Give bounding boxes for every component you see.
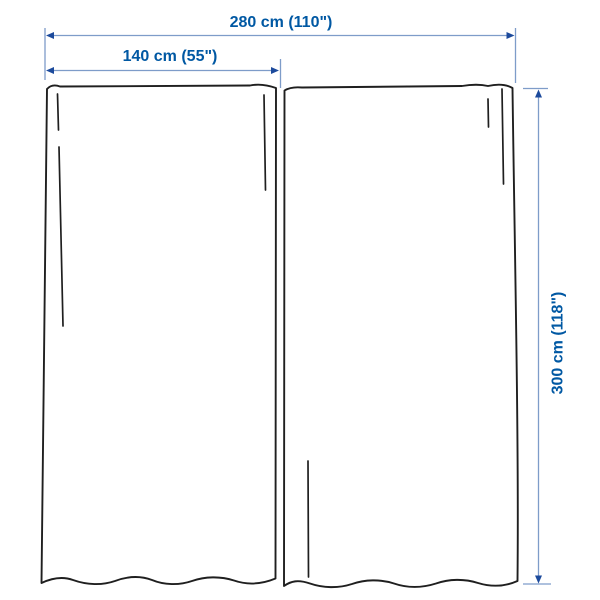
- dimension-width-panel: 140 cm (55"): [46, 48, 281, 88]
- width-total-label: 280 cm (110"): [230, 14, 333, 31]
- dimension-height: 300 cm (118"): [523, 89, 567, 585]
- curtains-diagram-svg: 280 cm (110") 140 cm (55") 300 cm (118"): [0, 0, 600, 600]
- product-dimension-diagram: 280 cm (110") 140 cm (55") 300 cm (118"): [0, 0, 600, 600]
- curtain-left-fold-line: [58, 94, 59, 130]
- curtain-panel-left: [42, 85, 277, 584]
- curtain-right-fold-line: [488, 99, 489, 127]
- arrow-down-icon: [535, 576, 542, 584]
- height-label: 300 cm (118"): [550, 292, 567, 395]
- arrow-left-icon: [46, 32, 54, 39]
- curtain-left-outline: [42, 85, 277, 584]
- arrow-left-icon: [46, 67, 54, 74]
- arrow-up-icon: [535, 90, 542, 98]
- arrow-right-icon: [507, 32, 515, 39]
- curtain-panel-right: [284, 85, 518, 587]
- width-panel-label: 140 cm (55"): [123, 48, 218, 65]
- arrow-right-icon: [271, 67, 279, 74]
- curtain-right-fold-line: [308, 461, 309, 577]
- curtain-right-outline: [284, 85, 518, 587]
